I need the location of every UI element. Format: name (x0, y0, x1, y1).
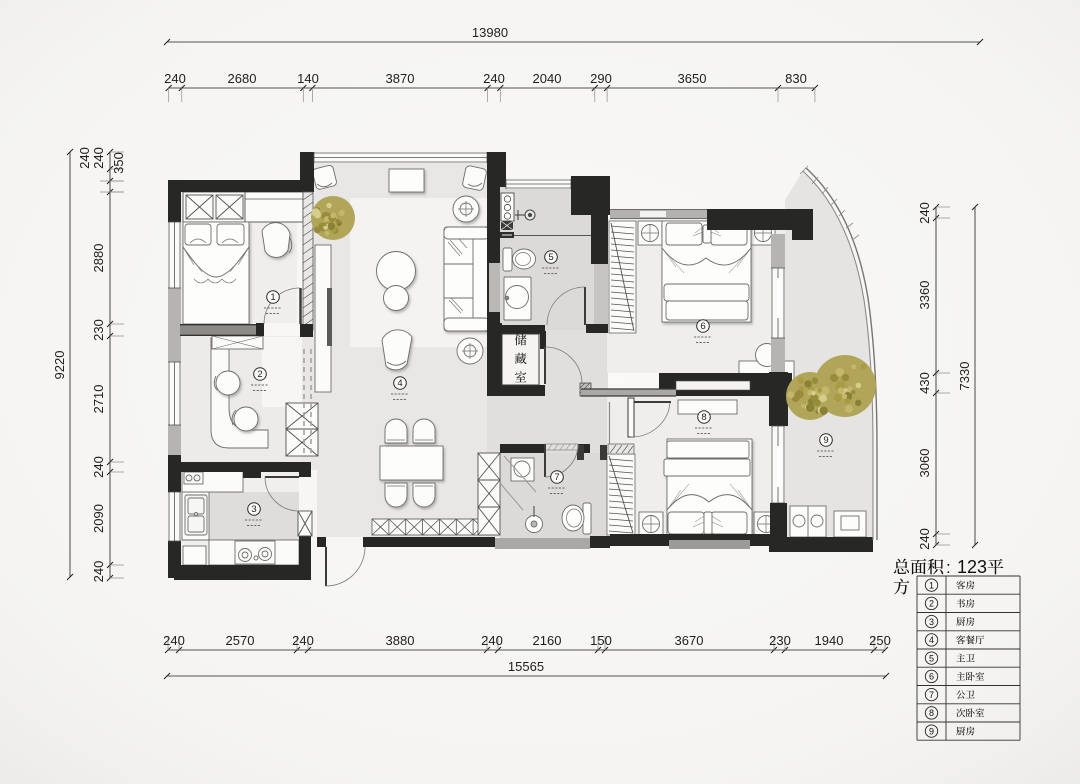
svg-text:9: 9 (929, 726, 934, 736)
svg-text:3: 3 (251, 504, 256, 515)
svg-text:150: 150 (590, 633, 612, 648)
svg-text:430: 430 (917, 372, 932, 394)
svg-text:230: 230 (91, 319, 106, 341)
svg-text:240: 240 (77, 147, 92, 169)
svg-text:4: 4 (397, 378, 402, 389)
svg-text:13980: 13980 (472, 25, 508, 40)
svg-text:2680: 2680 (228, 71, 257, 86)
svg-text:830: 830 (785, 71, 807, 86)
svg-text:3670: 3670 (675, 633, 704, 648)
svg-text:2570: 2570 (226, 633, 255, 648)
svg-text:7: 7 (554, 472, 559, 483)
svg-text:240: 240 (91, 456, 106, 478)
svg-text:9220: 9220 (52, 351, 67, 380)
svg-text:3360: 3360 (917, 281, 932, 310)
svg-text:3870: 3870 (386, 71, 415, 86)
svg-text:2090: 2090 (91, 504, 106, 533)
svg-text:240: 240 (481, 633, 503, 648)
svg-text:240: 240 (164, 71, 186, 86)
svg-text:2710: 2710 (91, 385, 106, 414)
svg-text:5: 5 (548, 252, 553, 263)
svg-text:3: 3 (929, 617, 934, 627)
svg-text:6: 6 (700, 321, 705, 332)
svg-text:7330: 7330 (957, 362, 972, 391)
svg-text:240: 240 (292, 633, 314, 648)
svg-text:240: 240 (917, 202, 932, 224)
svg-text:3880: 3880 (386, 633, 415, 648)
svg-text:1: 1 (929, 580, 934, 590)
svg-text:2: 2 (257, 369, 262, 380)
svg-text:240: 240 (91, 147, 106, 169)
svg-text:8: 8 (929, 708, 934, 718)
svg-text:350: 350 (111, 152, 126, 174)
svg-text:240: 240 (163, 633, 185, 648)
svg-text:15565: 15565 (508, 659, 544, 674)
svg-text:1: 1 (270, 292, 275, 303)
svg-text:3650: 3650 (678, 71, 707, 86)
svg-text:9: 9 (823, 435, 828, 446)
svg-text:7: 7 (929, 690, 934, 700)
svg-text:2880: 2880 (91, 244, 106, 273)
svg-text:2: 2 (929, 599, 934, 609)
svg-text:5: 5 (929, 653, 934, 663)
svg-text:4: 4 (929, 635, 934, 645)
svg-text:2160: 2160 (533, 633, 562, 648)
svg-text:6: 6 (929, 672, 934, 682)
svg-text:230: 230 (769, 633, 791, 648)
svg-text:250: 250 (869, 633, 891, 648)
svg-text:8: 8 (701, 412, 706, 423)
svg-text:240: 240 (917, 528, 932, 550)
svg-text:3060: 3060 (917, 449, 932, 478)
svg-text:240: 240 (91, 561, 106, 583)
svg-text:2040: 2040 (533, 71, 562, 86)
svg-text::: : (946, 558, 951, 577)
svg-text:240: 240 (483, 71, 505, 86)
svg-text:140: 140 (297, 71, 319, 86)
svg-text:123: 123 (957, 557, 987, 577)
svg-text:290: 290 (590, 71, 612, 86)
svg-text:1940: 1940 (815, 633, 844, 648)
